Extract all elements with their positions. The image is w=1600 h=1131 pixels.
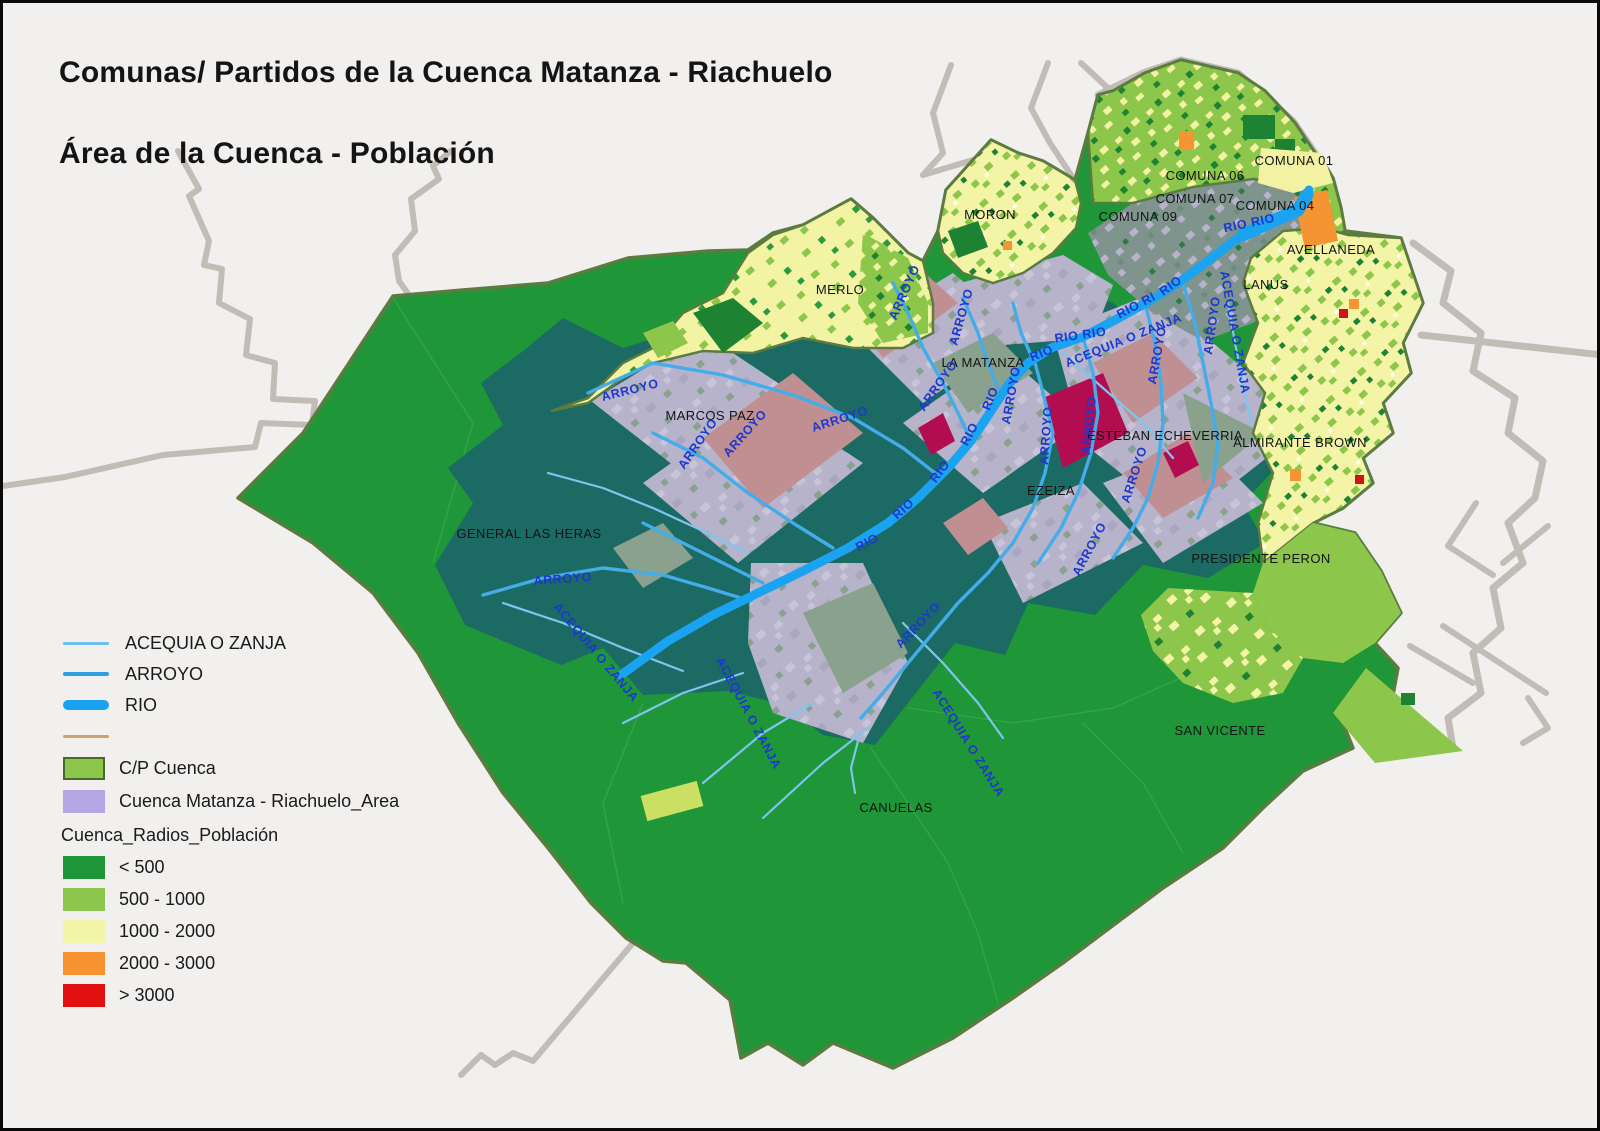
map-figure: MERLOMORONCOMUNA 09COMUNA 07COMUNA 06COM… [0,0,1600,1131]
population-legend-header: Cuenca_Radios_Población [61,825,278,846]
legend-label: ACEQUIA O ZANJA [125,633,286,654]
pop-swatch [63,888,105,911]
region-label: PRESIDENTE PERON [1191,551,1330,566]
region-label: AVELLANEDA [1287,242,1375,257]
legend-row-unlabeled [63,724,125,748]
legend-row-acequia: ACEQUIA O ZANJA [63,631,286,655]
legend-label: C/P Cuenca [119,758,216,779]
legend-label: > 3000 [119,985,175,1006]
rio-line-swatch [63,700,109,710]
legend-row-rio: RIO [63,693,157,717]
region-label: COMUNA 06 [1166,168,1245,183]
region-label: EZEIZA [1027,483,1075,498]
region-label: ALMIRANTE BROWN [1233,435,1367,450]
legend-label: 1000 - 2000 [119,921,215,942]
title-line1: Comunas/ Partidos de la Cuenca Matanza -… [59,56,833,89]
region-label: MORON [964,207,1016,222]
legend-row-cp-cuenca: C/P Cuenca [63,756,216,780]
tan-line-swatch [63,735,109,738]
legend-row-cuenca-area: Cuenca Matanza - Riachuelo_Area [63,789,399,813]
region-label: GENERAL LAS HERAS [456,526,601,541]
region-label: CANUELAS [859,800,932,815]
arroyo-line-swatch [63,672,109,676]
region-label: COMUNA 09 [1099,209,1178,224]
region-label: COMUNA 07 [1156,191,1235,206]
legend-label: < 500 [119,857,165,878]
title-line2: Área de la Cuenca - Población [59,137,495,170]
pop-swatch [63,952,105,975]
legend-row-pop-3: 2000 - 3000 [63,951,215,975]
region-label: ESTEBAN ECHEVERRIA [1087,428,1243,443]
cuenca-area-swatch [63,790,105,813]
pop-swatch [63,984,105,1007]
region-label: COMUNA 04 [1236,198,1315,213]
legend-label: ARROYO [125,664,203,685]
legend-row-pop-0: < 500 [63,855,165,879]
cp-cuenca-swatch [63,757,105,780]
acequia-line-swatch [63,642,109,645]
region-label: LANUS [1243,277,1288,292]
map-title: Comunas/ Partidos de la Cuenca Matanza -… [59,53,833,175]
legend-label: RIO [125,695,157,716]
legend-label: 500 - 1000 [119,889,205,910]
region-label: SAN VICENTE [1174,723,1265,738]
region-label: MERLO [816,282,864,297]
legend-row-pop-1: 500 - 1000 [63,887,205,911]
pop-swatch [63,920,105,943]
legend-row-pop-2: 1000 - 2000 [63,919,215,943]
legend-label: 2000 - 3000 [119,953,215,974]
legend-row-arroyo: ARROYO [63,662,203,686]
region-label: COMUNA 01 [1255,153,1334,168]
legend-row-pop-4: > 3000 [63,983,175,1007]
legend-label: Cuenca Matanza - Riachuelo_Area [119,791,399,812]
pop-swatch [63,856,105,879]
